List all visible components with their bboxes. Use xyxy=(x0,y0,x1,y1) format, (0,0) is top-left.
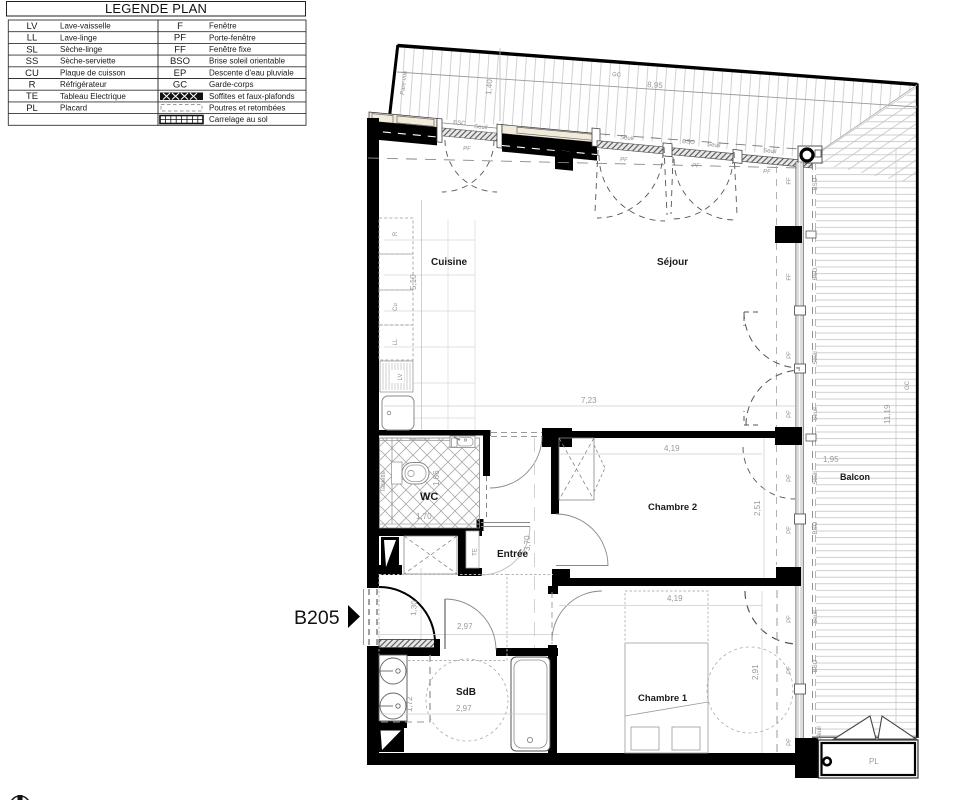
svg-text:Seuil: Seuil xyxy=(813,351,819,364)
svg-text:Fenêtre: Fenêtre xyxy=(209,22,237,31)
svg-text:Réfrigérateur: Réfrigérateur xyxy=(60,80,107,89)
svg-text:R: R xyxy=(29,80,36,91)
svg-text:SS: SS xyxy=(26,56,39,67)
svg-text:BSO: BSO xyxy=(682,139,696,146)
svg-text:2,91: 2,91 xyxy=(751,664,760,680)
svg-text:Carrelage au sol: Carrelage au sol xyxy=(209,115,268,124)
svg-text:FF: FF xyxy=(174,44,186,55)
svg-text:Seuil: Seuil xyxy=(763,148,777,155)
svg-text:4,19: 4,19 xyxy=(664,444,680,453)
svg-text:LV: LV xyxy=(27,21,39,32)
svg-text:PF: PF xyxy=(787,410,793,418)
svg-text:Tablette: Tablette xyxy=(381,470,387,492)
svg-text:EP: EP xyxy=(174,68,187,79)
svg-text:Tableau Electrique: Tableau Electrique xyxy=(60,92,126,101)
svg-text:1,95: 1,95 xyxy=(823,455,839,464)
svg-text:Séjour: Séjour xyxy=(657,257,688,268)
svg-text:Balcon: Balcon xyxy=(840,472,870,482)
svg-text:BSO: BSO xyxy=(813,521,819,534)
svg-text:PF: PF xyxy=(787,615,793,623)
svg-text:SdB: SdB xyxy=(456,687,476,698)
svg-text:PF: PF xyxy=(174,33,186,44)
svg-text:TE: TE xyxy=(473,548,479,556)
svg-text:7,23: 7,23 xyxy=(581,396,597,405)
svg-text:Chambre 2: Chambre 2 xyxy=(648,502,697,513)
svg-text:PF: PF xyxy=(620,157,629,164)
svg-text:Lave-vaisselle: Lave-vaisselle xyxy=(60,22,111,31)
svg-text:Seuil: Seuil xyxy=(813,471,819,484)
svg-text:1,40: 1,40 xyxy=(484,78,494,95)
svg-text:BSO: BSO xyxy=(813,177,819,190)
svg-text:4,19: 4,19 xyxy=(667,594,683,603)
svg-text:FF: FF xyxy=(787,177,793,185)
svg-text:R: R xyxy=(393,231,399,236)
svg-text:PF: PF xyxy=(463,146,472,153)
svg-text:Garde-corps: Garde-corps xyxy=(209,80,253,89)
svg-text:PL: PL xyxy=(869,757,879,766)
svg-text:banquette: banquette xyxy=(409,436,428,441)
svg-text:Seuil: Seuil xyxy=(813,407,819,420)
svg-text:PF: PF xyxy=(787,666,793,674)
svg-text:Descente d'eau pluviale: Descente d'eau pluviale xyxy=(209,68,294,77)
svg-text:1,30: 1,30 xyxy=(409,600,419,617)
svg-text:LL: LL xyxy=(393,338,399,345)
svg-text:2,97: 2,97 xyxy=(456,704,472,713)
svg-text:Plaque de cuisson: Plaque de cuisson xyxy=(60,68,125,77)
svg-text:Brise soleil orientable: Brise soleil orientable xyxy=(209,57,286,66)
svg-text:LL: LL xyxy=(27,33,38,44)
svg-text:GC: GC xyxy=(905,380,911,390)
svg-text:BSO: BSO xyxy=(453,120,467,127)
svg-text:BSO: BSO xyxy=(813,659,819,672)
svg-text:1,66: 1,66 xyxy=(432,470,441,486)
svg-text:CU: CU xyxy=(25,68,39,79)
svg-text:Sèche-serviette: Sèche-serviette xyxy=(60,57,116,66)
svg-text:Cuisine: Cuisine xyxy=(431,257,468,268)
svg-text:2,51: 2,51 xyxy=(753,500,762,516)
svg-text:2,97: 2,97 xyxy=(457,622,473,631)
svg-text:Seuil: Seuil xyxy=(813,610,819,623)
svg-text:PF: PF xyxy=(787,474,793,482)
svg-text:Fenêtre fixe: Fenêtre fixe xyxy=(209,45,252,54)
svg-text:GC: GC xyxy=(612,72,622,79)
svg-text:Porte-fenêtre: Porte-fenêtre xyxy=(209,33,256,42)
svg-text:Chambre 1: Chambre 1 xyxy=(638,693,688,704)
svg-text:1,72: 1,72 xyxy=(405,696,414,712)
svg-text:F: F xyxy=(177,21,183,32)
svg-text:Seuil: Seuil xyxy=(620,135,634,142)
svg-text:SL: SL xyxy=(26,44,38,55)
svg-text:LEGENDE PLAN: LEGENDE PLAN xyxy=(105,1,207,16)
svg-text:PF: PF xyxy=(787,738,793,746)
svg-text:FF: FF xyxy=(787,273,793,281)
svg-text:5,10: 5,10 xyxy=(409,274,418,290)
svg-text:B205: B205 xyxy=(294,607,340,629)
svg-text:Poutres et retombées: Poutres et retombées xyxy=(209,104,285,113)
svg-text:Entrée: Entrée xyxy=(497,549,529,560)
svg-text:PF: PF xyxy=(692,163,701,170)
svg-text:LV: LV xyxy=(398,374,404,381)
svg-text:11,19: 11,19 xyxy=(883,404,892,424)
svg-text:PF: PF xyxy=(787,526,793,534)
svg-text:PF: PF xyxy=(787,351,793,359)
svg-text:8,95: 8,95 xyxy=(647,80,664,90)
svg-text:Lave-linge: Lave-linge xyxy=(60,33,97,42)
svg-text:TE: TE xyxy=(26,91,38,102)
svg-text:PL: PL xyxy=(26,103,38,114)
svg-text:Cu: Cu xyxy=(393,303,399,311)
svg-text:BSO: BSO xyxy=(170,56,190,67)
svg-text:BSO: BSO xyxy=(813,267,819,280)
svg-text:Seuil: Seuil xyxy=(817,726,823,739)
svg-text:Placard: Placard xyxy=(60,104,87,113)
svg-text:GC: GC xyxy=(173,80,187,91)
svg-text:Seuil: Seuil xyxy=(474,124,488,131)
svg-text:WC: WC xyxy=(420,491,438,503)
svg-text:Seuil: Seuil xyxy=(707,142,721,149)
svg-text:1,70: 1,70 xyxy=(416,512,432,521)
svg-text:Sèche-linge: Sèche-linge xyxy=(60,45,103,54)
svg-text:PF: PF xyxy=(763,169,772,176)
svg-text:Soffites et faux-plafonds: Soffites et faux-plafonds xyxy=(209,92,295,101)
